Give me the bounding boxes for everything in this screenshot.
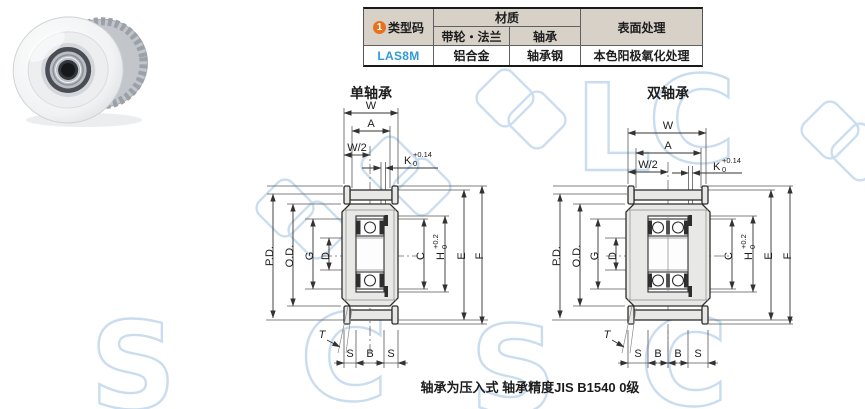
dim-label-h-single: H +0.2 0 <box>431 234 449 260</box>
dim-label-pd-single: P.D. <box>264 246 276 266</box>
double-bearings <box>648 215 692 297</box>
dim-label-c-single: C <box>415 252 427 260</box>
catalog-page: L C S C S C <box>0 0 865 409</box>
dim-label-b1-double: B <box>654 348 661 360</box>
svg-text:H: H <box>743 252 755 260</box>
dim-label-d-single: D <box>320 252 332 260</box>
dim-label-g-double: G <box>589 252 601 261</box>
double-pulley-section <box>626 186 710 324</box>
double-bearing-drawing: W A W/2 K +0.14 0 P.D. O.D. G D C H +0.2… <box>551 120 794 368</box>
dim-label-s2-single: S <box>387 348 394 360</box>
h-tolerance-upper-double: +0.2 <box>739 234 748 249</box>
dim-label-od-double: O.D. <box>571 245 583 268</box>
dim-label-s1-single: S <box>346 348 353 360</box>
dim-label-b-single: B <box>366 348 373 360</box>
dim-label-g-single: G <box>304 252 316 261</box>
h-tolerance-lower-double: 0 <box>748 245 757 249</box>
dim-label-t-single: T <box>319 329 327 341</box>
h-tolerance-upper-single: +0.2 <box>431 234 440 249</box>
dim-label-pd-double: P.D. <box>551 246 563 266</box>
dim-label-a-single: A <box>367 118 375 130</box>
single-bearing-drawing: W A W/2 K +0.14 0 P.D. O.D. G D C H +0.2… <box>264 100 488 368</box>
technical-drawings: W A W/2 K +0.14 0 P.D. O.D. G D C H +0.2… <box>0 0 865 409</box>
dim-label-k-double: K <box>713 161 721 173</box>
k-tolerance-lower-single: 0 <box>413 159 417 168</box>
h-tolerance-lower-single: 0 <box>440 245 449 249</box>
dim-label-w-half-single: W/2 <box>347 142 367 154</box>
svg-text:H: H <box>435 252 447 260</box>
dim-label-s1-double: S <box>634 348 641 360</box>
single-pulley-section <box>342 186 398 324</box>
dim-label-e-single: E <box>456 252 468 259</box>
dim-label-a-double: A <box>664 140 672 152</box>
dim-label-od-single: O.D. <box>284 245 296 268</box>
dim-label-w-double: W <box>663 120 674 132</box>
dim-label-f-double: F <box>782 252 794 259</box>
dim-label-e-double: E <box>763 252 775 259</box>
dim-label-h-double: H +0.2 0 <box>739 234 757 260</box>
dim-label-f-single: F <box>474 252 486 259</box>
k-tolerance-lower-double: 0 <box>722 165 726 174</box>
dim-label-s2-double: S <box>694 348 701 360</box>
dim-label-d-double: D <box>607 252 619 260</box>
k-tolerance-upper-double: +0.14 <box>722 156 741 165</box>
k-tolerance-upper-single: +0.14 <box>413 150 432 159</box>
footnote: 轴承为压入式 轴承精度JIS B1540 0级 <box>300 377 760 396</box>
dim-label-c-double: C <box>723 252 735 260</box>
dim-label-w-single: W <box>366 100 377 112</box>
dim-label-w-half-double: W/2 <box>638 159 658 171</box>
dim-label-b2-double: B <box>674 348 681 360</box>
dim-label-t-double: T <box>604 329 612 341</box>
single-bearing <box>356 215 388 297</box>
dim-label-k-single: K <box>404 155 412 167</box>
